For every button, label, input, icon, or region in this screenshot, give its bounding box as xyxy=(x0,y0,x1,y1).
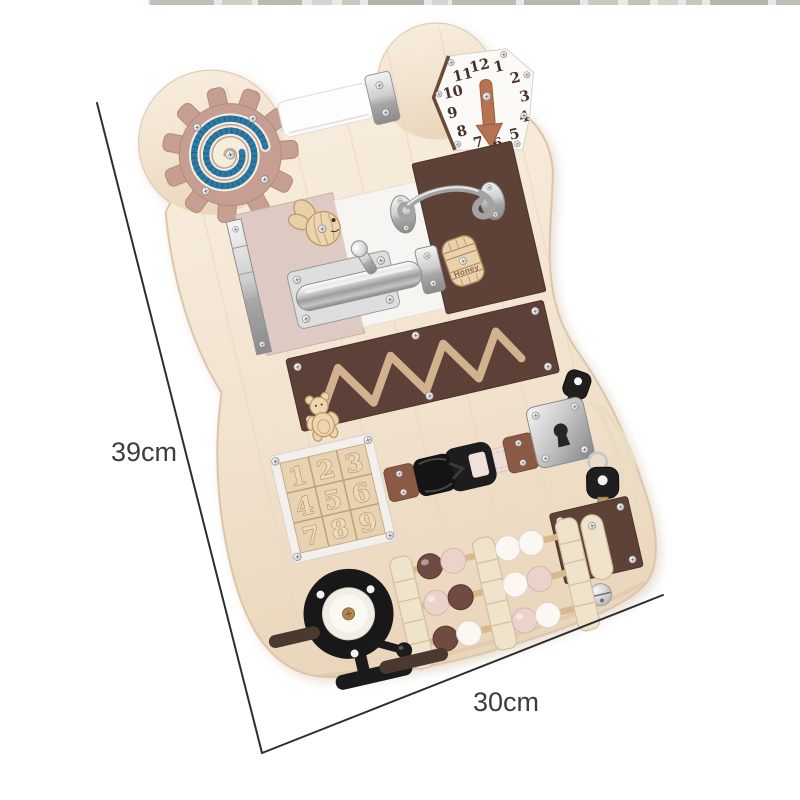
height-label: 39cm xyxy=(111,437,177,467)
width-label: 30cm xyxy=(473,687,539,717)
top-banner xyxy=(148,0,800,5)
busy-board: 12 1 2 3 4 5 6 7 8 9 10 11 xyxy=(121,0,675,708)
product-image: 12 1 2 3 4 5 6 7 8 9 10 11 xyxy=(0,0,800,800)
